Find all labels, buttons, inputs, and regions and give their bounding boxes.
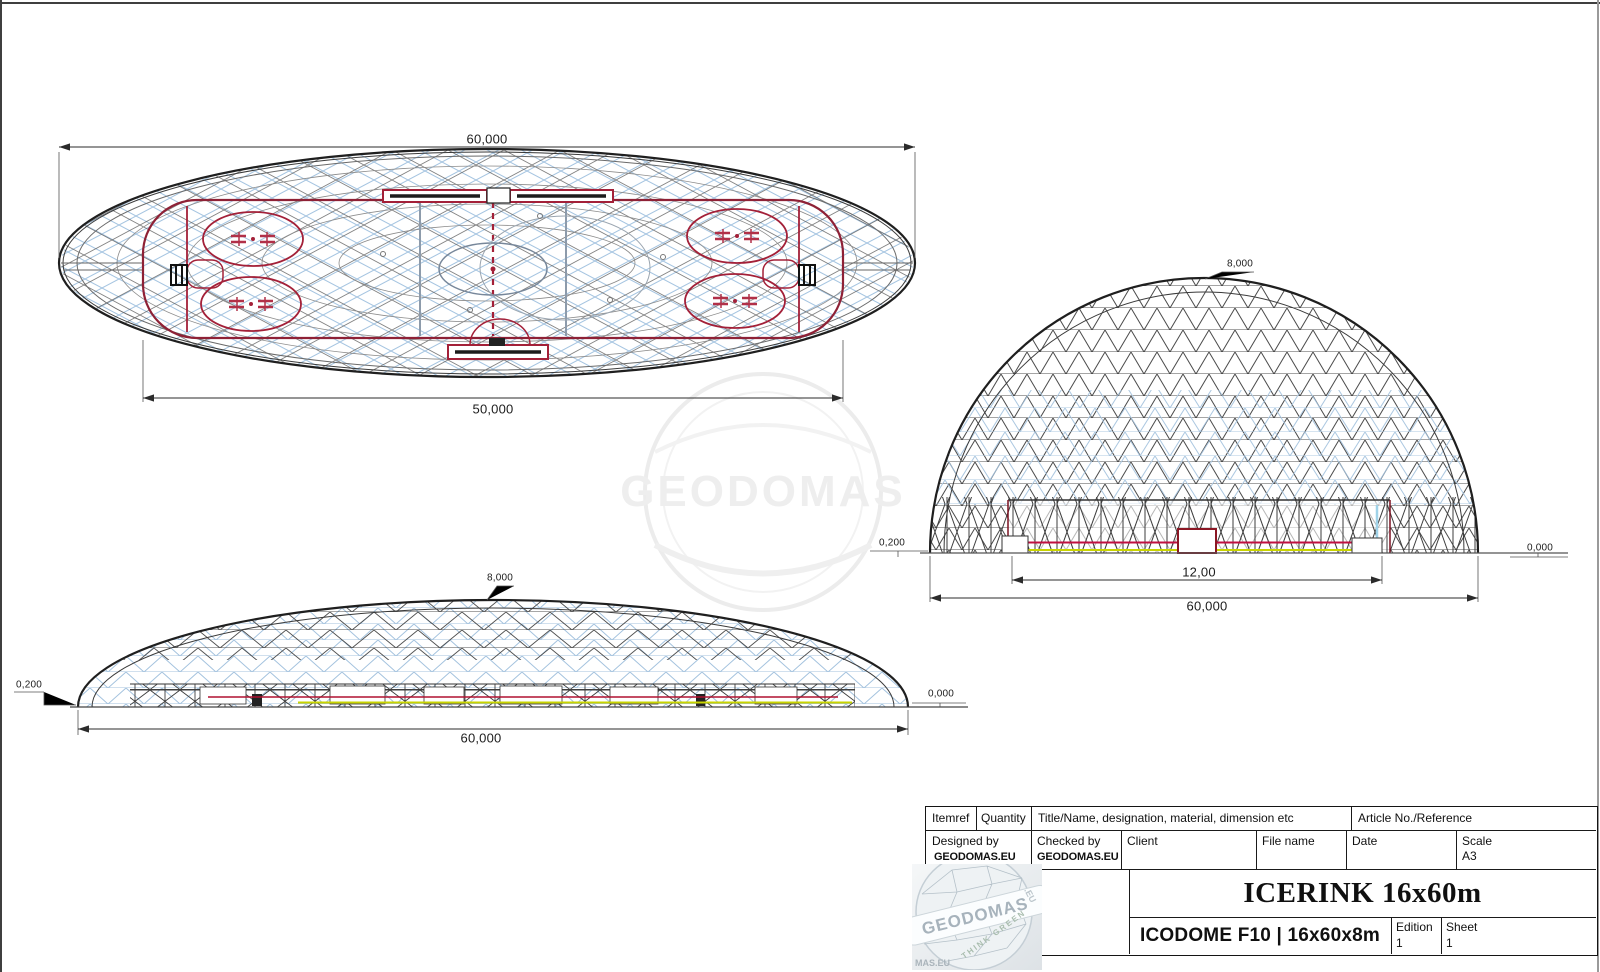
drawing-sheet: GEODOMAS xyxy=(0,0,1600,972)
side-right-dim-label: 0,000 xyxy=(928,689,954,700)
plan-view-drawing xyxy=(59,147,917,402)
side-elevation-drawing xyxy=(14,586,968,735)
edition-label: Edition xyxy=(1396,920,1433,934)
edition-value: 1 xyxy=(1396,936,1403,950)
end-height-dim-label: 8,000 xyxy=(1227,259,1253,270)
date-label: Date xyxy=(1352,834,1377,848)
side-width-dim-label: 60,000 xyxy=(461,731,502,746)
scale-value: A3 xyxy=(1462,849,1477,863)
end-right-dim-label: 0,000 xyxy=(1527,543,1553,554)
designed-by-label: Designed by xyxy=(932,834,999,848)
plan-width-dim-label: 60,000 xyxy=(467,132,508,147)
file-name-label: File name xyxy=(1262,834,1315,848)
client-label: Client xyxy=(1127,834,1158,848)
end-elevation-drawing xyxy=(870,272,1568,602)
sheet-value: 1 xyxy=(1446,936,1453,950)
geodomas-logo-art: GEODOMAS .EU THINK GREEN MAS.EU xyxy=(912,864,1042,970)
side-left-dim-label: 0,200 xyxy=(16,680,42,691)
logo-corner-text: MAS.EU xyxy=(915,958,950,968)
end-inner-dim-label: 12,00 xyxy=(1182,565,1216,580)
plan-rink-dim-label: 50,000 xyxy=(473,402,514,417)
end-width-dim-label: 60,000 xyxy=(1187,599,1228,614)
drawing-title: ICERINK 16x60m xyxy=(1243,877,1481,910)
watermark-text: GEODOMAS xyxy=(620,467,906,516)
end-left-dim-label: 0,200 xyxy=(879,538,905,549)
center-watermark: GEODOMAS xyxy=(620,374,906,610)
rink-top-equipment xyxy=(383,188,613,203)
drawing-subtitle: ICODOME F10 | 16x60x8m xyxy=(1140,925,1380,947)
checked-by-value: GEODOMAS.EU xyxy=(1037,851,1119,863)
quantity-header: Quantity xyxy=(981,811,1026,825)
sheet-label: Sheet xyxy=(1446,920,1477,934)
geodomas-logo: GEODOMAS .EU THINK GREEN MAS.EU xyxy=(912,864,1042,970)
designed-by-value: GEODOMAS.EU xyxy=(934,851,1016,863)
article-header: Article No./Reference xyxy=(1358,811,1472,825)
checked-by-label: Checked by xyxy=(1037,834,1100,848)
side-height-dim-label: 8,000 xyxy=(487,573,513,584)
itemref-header: Itemref xyxy=(932,811,969,825)
titlename-header: Title/Name, designation, material, dimen… xyxy=(1038,811,1294,825)
scale-label: Scale xyxy=(1462,834,1492,848)
